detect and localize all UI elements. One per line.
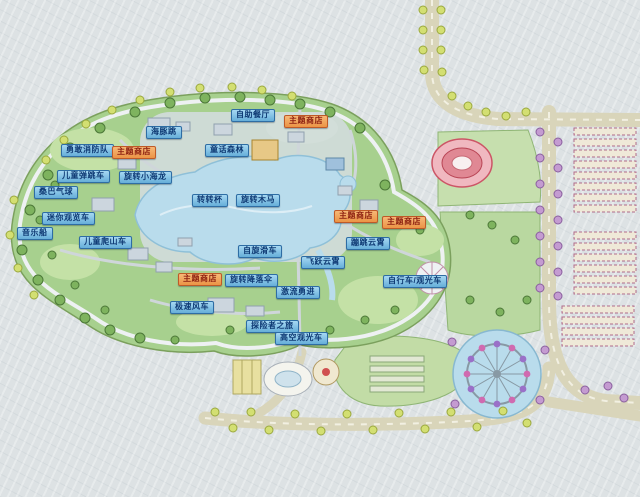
map-label-attraction: 蹦跳云霄 xyxy=(346,237,390,250)
map-label-attraction: 探险者之旅 xyxy=(246,320,299,333)
map-label-attraction: 自助餐厅 xyxy=(231,109,275,122)
map-label-attraction: 海豚跳 xyxy=(146,126,182,139)
map-label-shop: 主题商店 xyxy=(178,273,222,286)
map-label-attraction: 自旋滑车 xyxy=(238,245,282,258)
map-label-attraction: 勇敢消防队 xyxy=(61,144,114,157)
map-label-attraction: 激流勇进 xyxy=(276,286,320,299)
map-label-attraction: 自行车/观光车 xyxy=(383,275,447,288)
map-label-attraction: 旋转降落伞 xyxy=(225,274,278,287)
map-label-attraction: 音乐船 xyxy=(17,227,53,240)
map-label-attraction: 旋转小海龙 xyxy=(119,171,172,184)
map-label-attraction: 儿童弹跳车 xyxy=(57,170,110,183)
map-label-attraction: 极速风车 xyxy=(170,301,214,314)
map-label-shop: 主题商店 xyxy=(284,115,328,128)
map-label-attraction: 桑巴气球 xyxy=(34,186,78,199)
map-label-shop: 主题商店 xyxy=(382,216,426,229)
map-label-attraction: 迷你观览车 xyxy=(42,212,95,225)
map-labels: 自助餐厅主题商店海豚跳勇敢消防队主题商店童话森林儿童弹跳车旋转小海龙桑巴气球转转… xyxy=(0,0,640,497)
park-map: 自助餐厅主题商店海豚跳勇敢消防队主题商店童话森林儿童弹跳车旋转小海龙桑巴气球转转… xyxy=(0,0,640,497)
map-label-attraction: 高空观光车 xyxy=(275,332,328,345)
map-label-shop: 主题商店 xyxy=(334,210,378,223)
map-label-attraction: 童话森林 xyxy=(205,144,249,157)
map-label-attraction: 儿童爬山车 xyxy=(79,236,132,249)
map-label-attraction: 转转杯 xyxy=(192,194,228,207)
map-label-shop: 主题商店 xyxy=(112,146,156,159)
map-label-attraction: 飞跃云霄 xyxy=(301,256,345,269)
map-label-attraction: 旋转木马 xyxy=(236,194,280,207)
